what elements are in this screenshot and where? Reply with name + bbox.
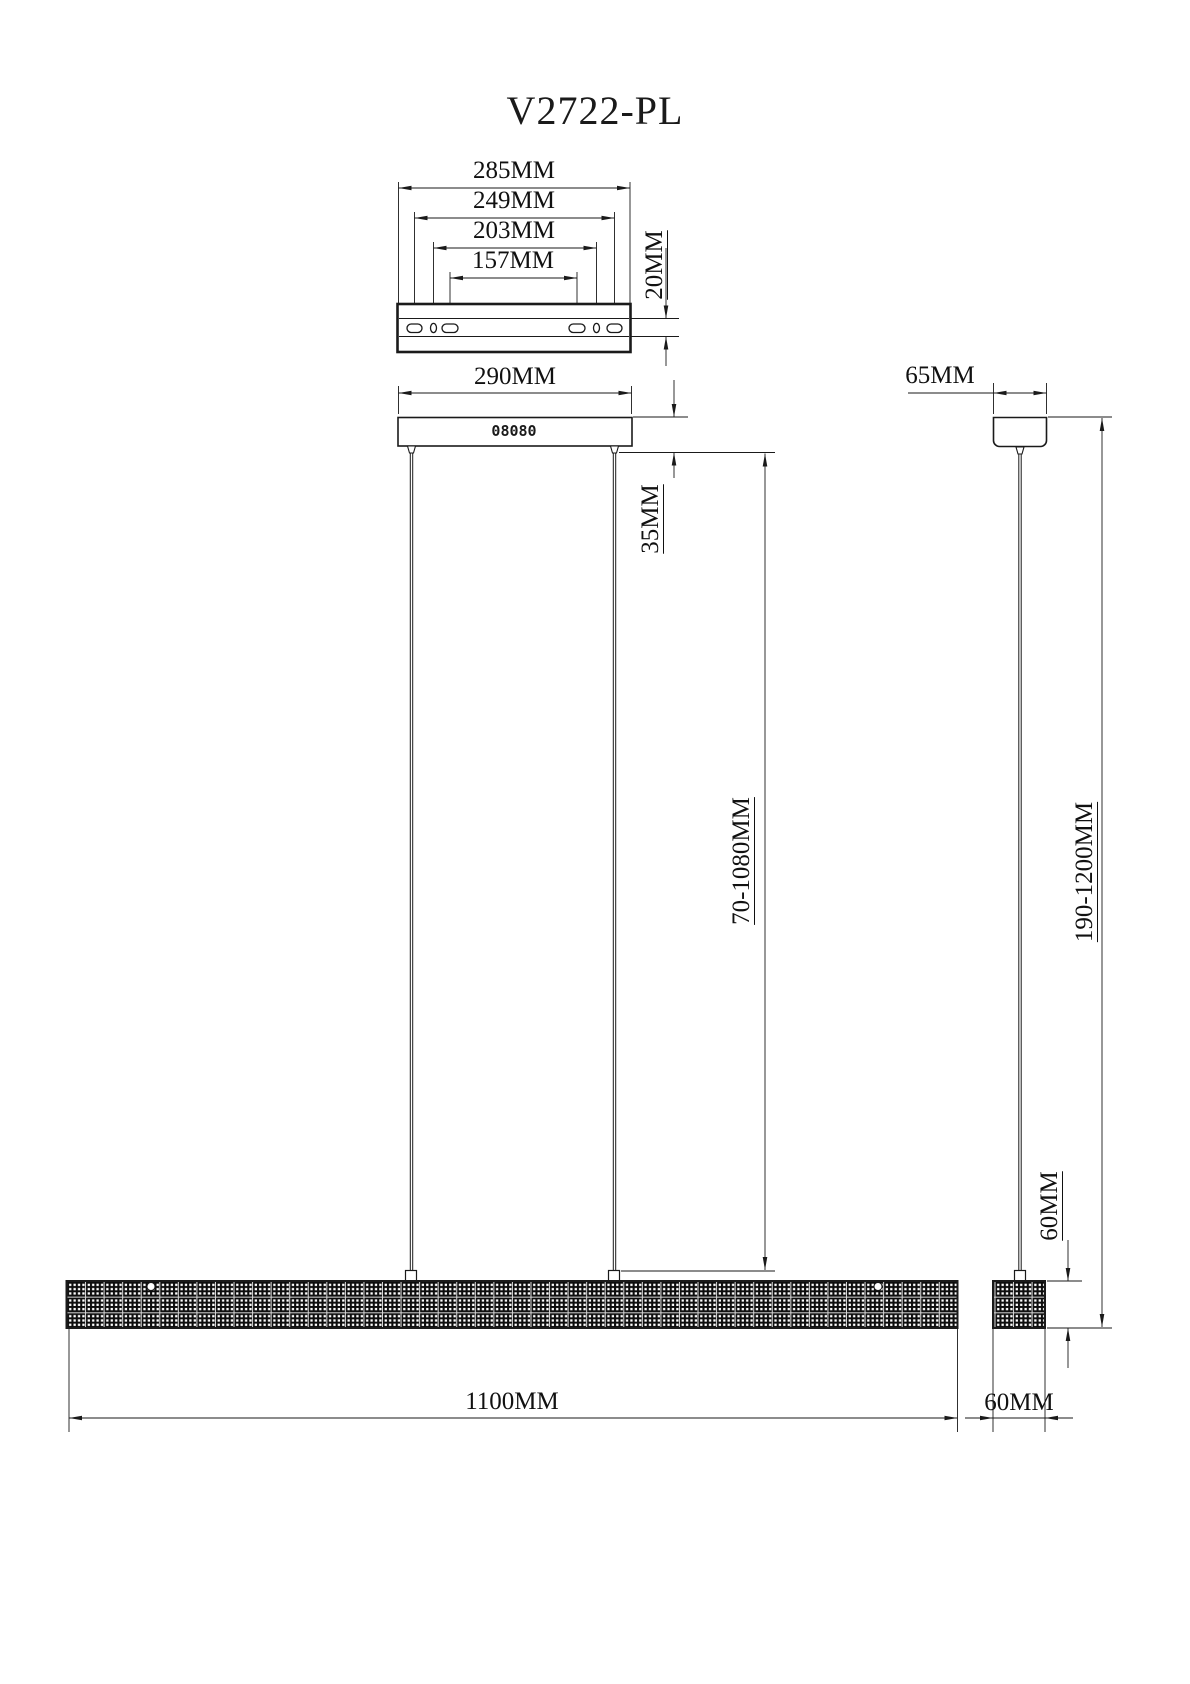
dim-label-290mm: 290MM [474, 364, 556, 390]
dim-label-249mm: 249MM [473, 188, 555, 214]
dim-label-60mm-height: 60MM [1037, 1171, 1063, 1240]
dim-label-70-1080mm: 70-1080MM [729, 797, 755, 925]
dim-label-20mm: 20MM [642, 230, 668, 299]
drawing-canvas [0, 0, 1190, 1684]
side-suspension-wire [1019, 454, 1021, 1271]
drawing-title: V2722-PL [507, 90, 684, 132]
suspension-wire-left [410, 453, 412, 1271]
bar-height-dimension [1047, 1240, 1082, 1368]
canopy-drop-dimension [619, 380, 775, 478]
dim-label-1100mm: 1100MM [465, 1389, 559, 1415]
bar-width-dimension [965, 1328, 1073, 1432]
drawing-sheet: V2722-PL 285MM 249MM 203MM 157MM 20MM 29… [0, 0, 1190, 1684]
side-canopy [994, 418, 1047, 447]
bar-detail-right [874, 1283, 882, 1291]
dim-label-60mm-width: 60MM [984, 1390, 1053, 1416]
side-cable-gripper [1016, 447, 1024, 454]
side-wire-connector [1015, 1271, 1026, 1282]
dim-label-35mm: 35MM [638, 484, 664, 553]
bar-length-dimension [69, 1328, 958, 1432]
canopy-terminal-marks: 08080 [491, 424, 536, 439]
cable-grippers [408, 446, 619, 453]
dim-label-157mm: 157MM [472, 248, 554, 274]
dim-label-203mm: 203MM [473, 218, 555, 244]
dim-label-190-1200mm: 190-1200MM [1072, 802, 1098, 942]
suspension-wire-right [613, 453, 615, 1271]
dim-label-285mm: 285MM [473, 158, 555, 184]
light-bar-side-section [993, 1281, 1045, 1328]
bar-detail-left [147, 1283, 155, 1291]
dim-label-65mm: 65MM [905, 363, 974, 389]
front-view [67, 380, 958, 1432]
light-bar-front [67, 1281, 958, 1328]
wire-connectors [406, 1271, 620, 1282]
